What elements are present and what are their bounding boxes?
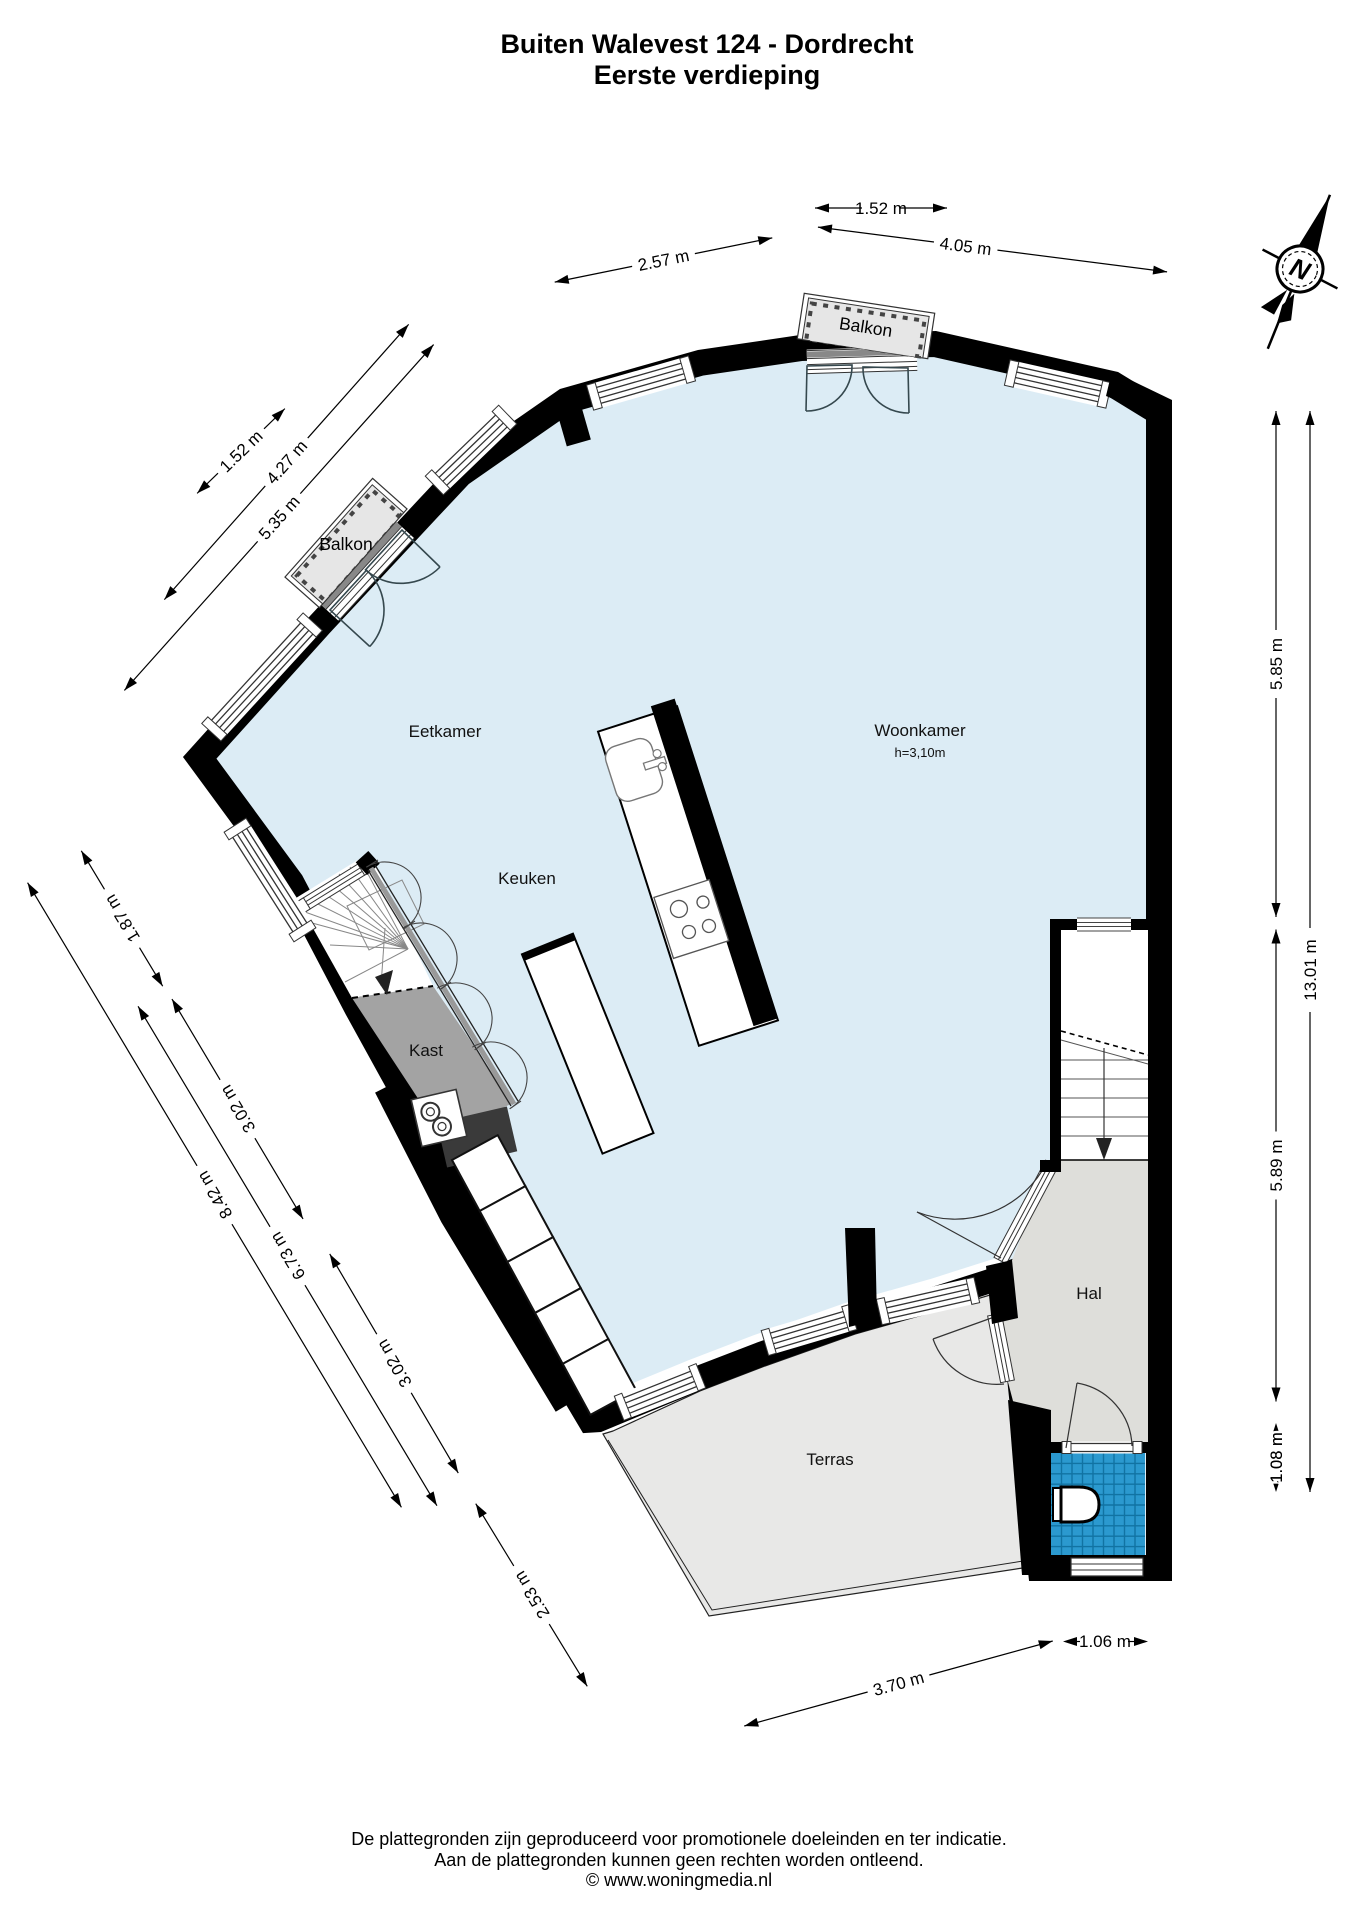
svg-text:1.06 m: 1.06 m — [1079, 1632, 1131, 1651]
svg-text:Eerste verdieping: Eerste verdieping — [594, 60, 821, 90]
svg-text:1.52 m: 1.52 m — [855, 199, 907, 218]
svg-text:De plattegronden zijn geproduc: De plattegronden zijn geproduceerd voor … — [351, 1829, 1006, 1849]
svg-text:Balkon: Balkon — [319, 534, 373, 554]
svg-text:© www.woningmedia.nl: © www.woningmedia.nl — [586, 1870, 772, 1890]
svg-text:5.85 m: 5.85 m — [1267, 638, 1286, 690]
svg-text:Terras: Terras — [806, 1450, 853, 1469]
svg-text:Keuken: Keuken — [498, 869, 556, 888]
svg-text:Buiten Walevest 124 - Dordrech: Buiten Walevest 124 - Dordrecht — [500, 29, 913, 59]
svg-text:5.89 m: 5.89 m — [1267, 1140, 1286, 1192]
svg-text:Aan de plattegronden kunnen ge: Aan de plattegronden kunnen geen rechten… — [434, 1850, 923, 1870]
svg-text:Woonkamer: Woonkamer — [874, 721, 966, 740]
svg-text:h=3,10m: h=3,10m — [895, 745, 946, 760]
svg-text:Hal: Hal — [1076, 1284, 1102, 1303]
svg-text:13.01 m: 13.01 m — [1301, 939, 1320, 1000]
svg-text:Kast: Kast — [409, 1041, 443, 1060]
svg-text:1.08 m: 1.08 m — [1268, 1432, 1286, 1482]
svg-text:Eetkamer: Eetkamer — [409, 722, 482, 741]
